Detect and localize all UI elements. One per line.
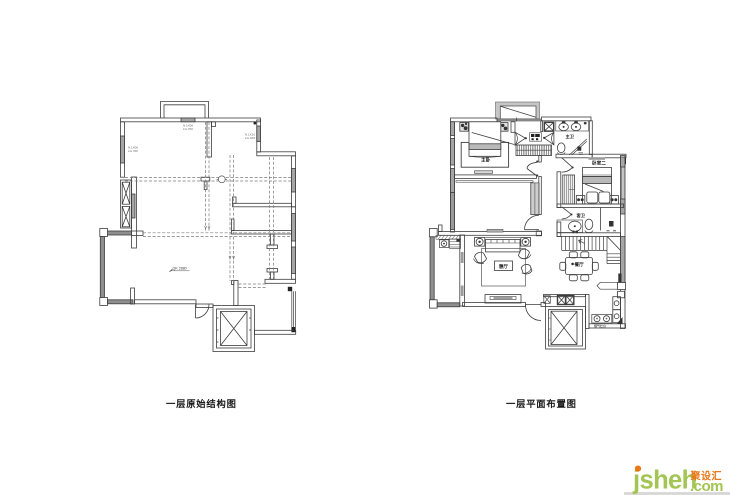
svg-text:煤气灶台: 煤气灶台	[594, 323, 606, 328]
svg-text:卧室二: 卧室二	[592, 160, 606, 167]
svg-text:主卧: 主卧	[481, 157, 491, 164]
svg-text:QK 2880: QK 2880	[173, 267, 187, 271]
svg-text:客卫: 客卫	[576, 212, 586, 219]
svg-text:LG.9X0: LG.9X0	[245, 136, 256, 140]
svg-text:LG.700: LG.700	[183, 127, 193, 131]
svg-text:LG.700: LG.700	[128, 149, 138, 153]
svg-text:主卫: 主卫	[566, 133, 575, 140]
svg-text:餐厅: 餐厅	[574, 261, 585, 268]
